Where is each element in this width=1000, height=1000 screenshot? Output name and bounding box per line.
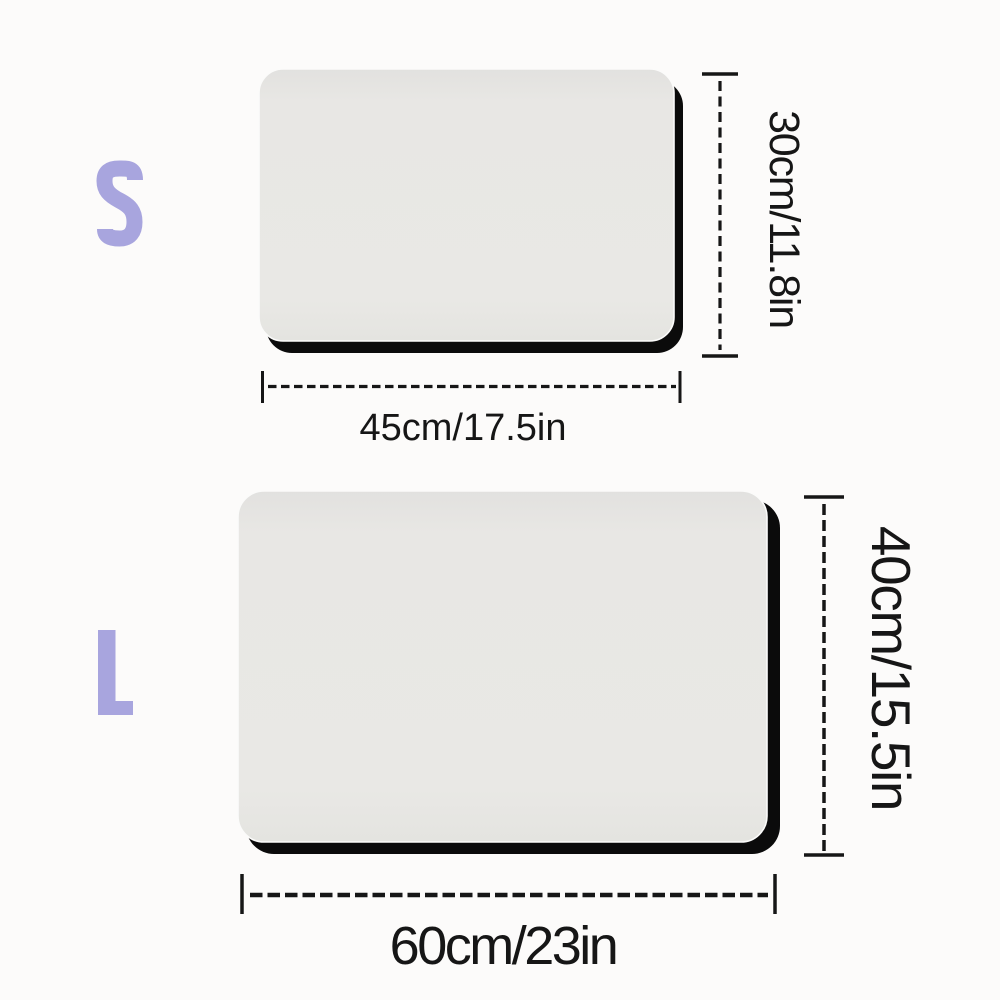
svg-text:60cm/23in: 60cm/23in bbox=[390, 916, 617, 976]
svg-text:40cm/15.5in: 40cm/15.5in bbox=[860, 526, 922, 810]
svg-text:45cm/17.5in: 45cm/17.5in bbox=[359, 407, 566, 449]
svg-text:30cm/11.8in: 30cm/11.8in bbox=[760, 110, 808, 328]
